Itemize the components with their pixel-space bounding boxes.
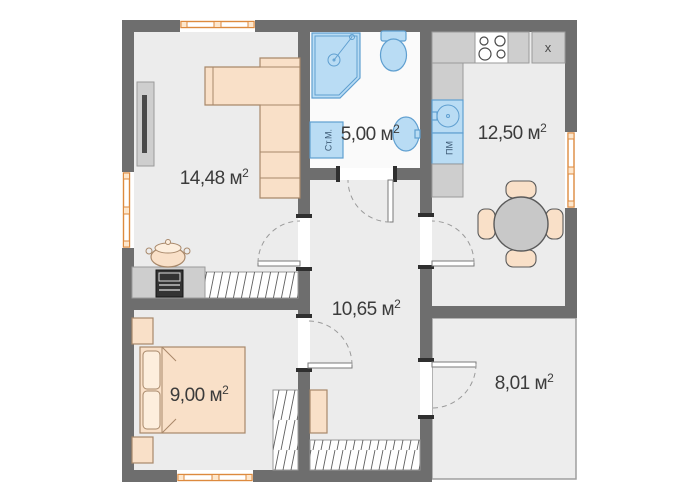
storage-room-floor <box>432 318 576 479</box>
bedroom-wardrobe-hatch <box>273 390 298 470</box>
window-bottom <box>177 470 253 482</box>
wall-hall-right-lower <box>420 415 432 482</box>
wall-bathroom-bottom-right <box>393 168 420 180</box>
chair <box>506 181 536 198</box>
nightstand <box>132 437 153 463</box>
jamb <box>296 314 312 318</box>
kitchen-area-label: 12,50 м2 <box>478 121 547 144</box>
wall-hall-right-upper <box>420 32 432 217</box>
chair <box>506 250 536 267</box>
tv <box>142 95 147 153</box>
bathroom-area-label: 5,00 м2 <box>341 122 400 145</box>
fridge-label: x <box>545 40 552 55</box>
washing-machine-label: Ст.М. <box>323 129 333 151</box>
wall-bottom <box>122 470 432 482</box>
wall-living-bedroom <box>122 298 310 310</box>
living-room-area-label: 14,48 м2 <box>180 166 249 189</box>
jamb <box>296 368 312 372</box>
wall-hall-left-lower <box>298 368 310 482</box>
storage-door-opening <box>420 362 432 415</box>
jamb <box>418 358 434 362</box>
floor-plan: Ст.М. x ПМ <box>0 0 700 502</box>
living-room-door-opening <box>298 218 310 267</box>
jamb <box>393 166 397 182</box>
fridge: x <box>532 32 565 63</box>
toilet <box>381 31 407 71</box>
cooktop <box>475 32 508 63</box>
jamb <box>296 214 312 218</box>
sideboard-hatch <box>205 272 298 298</box>
washing-machine: Ст.М. <box>310 122 343 158</box>
hallway-wardrobe-hatch <box>310 440 420 470</box>
kitchen-sink <box>432 100 463 133</box>
kitchen-counter-left-lower <box>432 164 463 197</box>
bedroom-door-opening <box>298 318 310 368</box>
dishwasher: ПМ <box>432 133 463 164</box>
wall-hall-left-middle <box>298 267 310 318</box>
jamb <box>418 415 434 419</box>
wall-bathroom-bottom-left <box>310 168 340 180</box>
storage-area-label: 8,01 м2 <box>495 371 554 394</box>
bathroom-door-opening <box>340 168 393 180</box>
window-right <box>565 132 577 208</box>
hallway-cabinet <box>310 390 327 433</box>
jamb <box>296 267 312 271</box>
jamb <box>418 213 434 217</box>
chair <box>478 209 495 239</box>
jamb <box>336 166 340 182</box>
hallway-area-label: 10,65 м2 <box>332 297 401 320</box>
floor-plan-drawing: Ст.М. x ПМ <box>0 0 700 502</box>
stove-fireplace <box>156 270 183 297</box>
kitchen-door-opening <box>420 217 432 265</box>
wall-kitchen-bottom <box>420 306 577 318</box>
window-left <box>122 172 134 248</box>
nightstand <box>132 318 153 344</box>
pillow <box>143 351 160 389</box>
kitchen-counter-left <box>432 63 463 100</box>
wall-left <box>122 20 134 482</box>
pillow <box>143 391 160 429</box>
bedroom-area-label: 9,00 м2 <box>170 383 229 406</box>
dining-table <box>494 197 548 251</box>
dishwasher-label: ПМ <box>444 141 454 155</box>
window-top <box>180 20 255 32</box>
